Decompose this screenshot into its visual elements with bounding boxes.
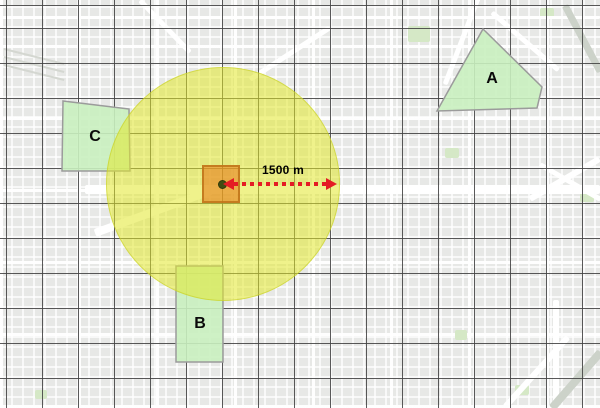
zone-b-label: B	[187, 315, 213, 333]
zone-c-label: C	[82, 128, 108, 146]
distance-label: 1500 m	[248, 163, 318, 177]
arrow-right-head	[326, 178, 337, 190]
distance-arrow	[234, 182, 327, 186]
arrow-left-head	[223, 178, 234, 190]
map-canvas[interactable]: 1500 m A B C	[0, 0, 600, 408]
zone-a-label: A	[479, 70, 505, 88]
